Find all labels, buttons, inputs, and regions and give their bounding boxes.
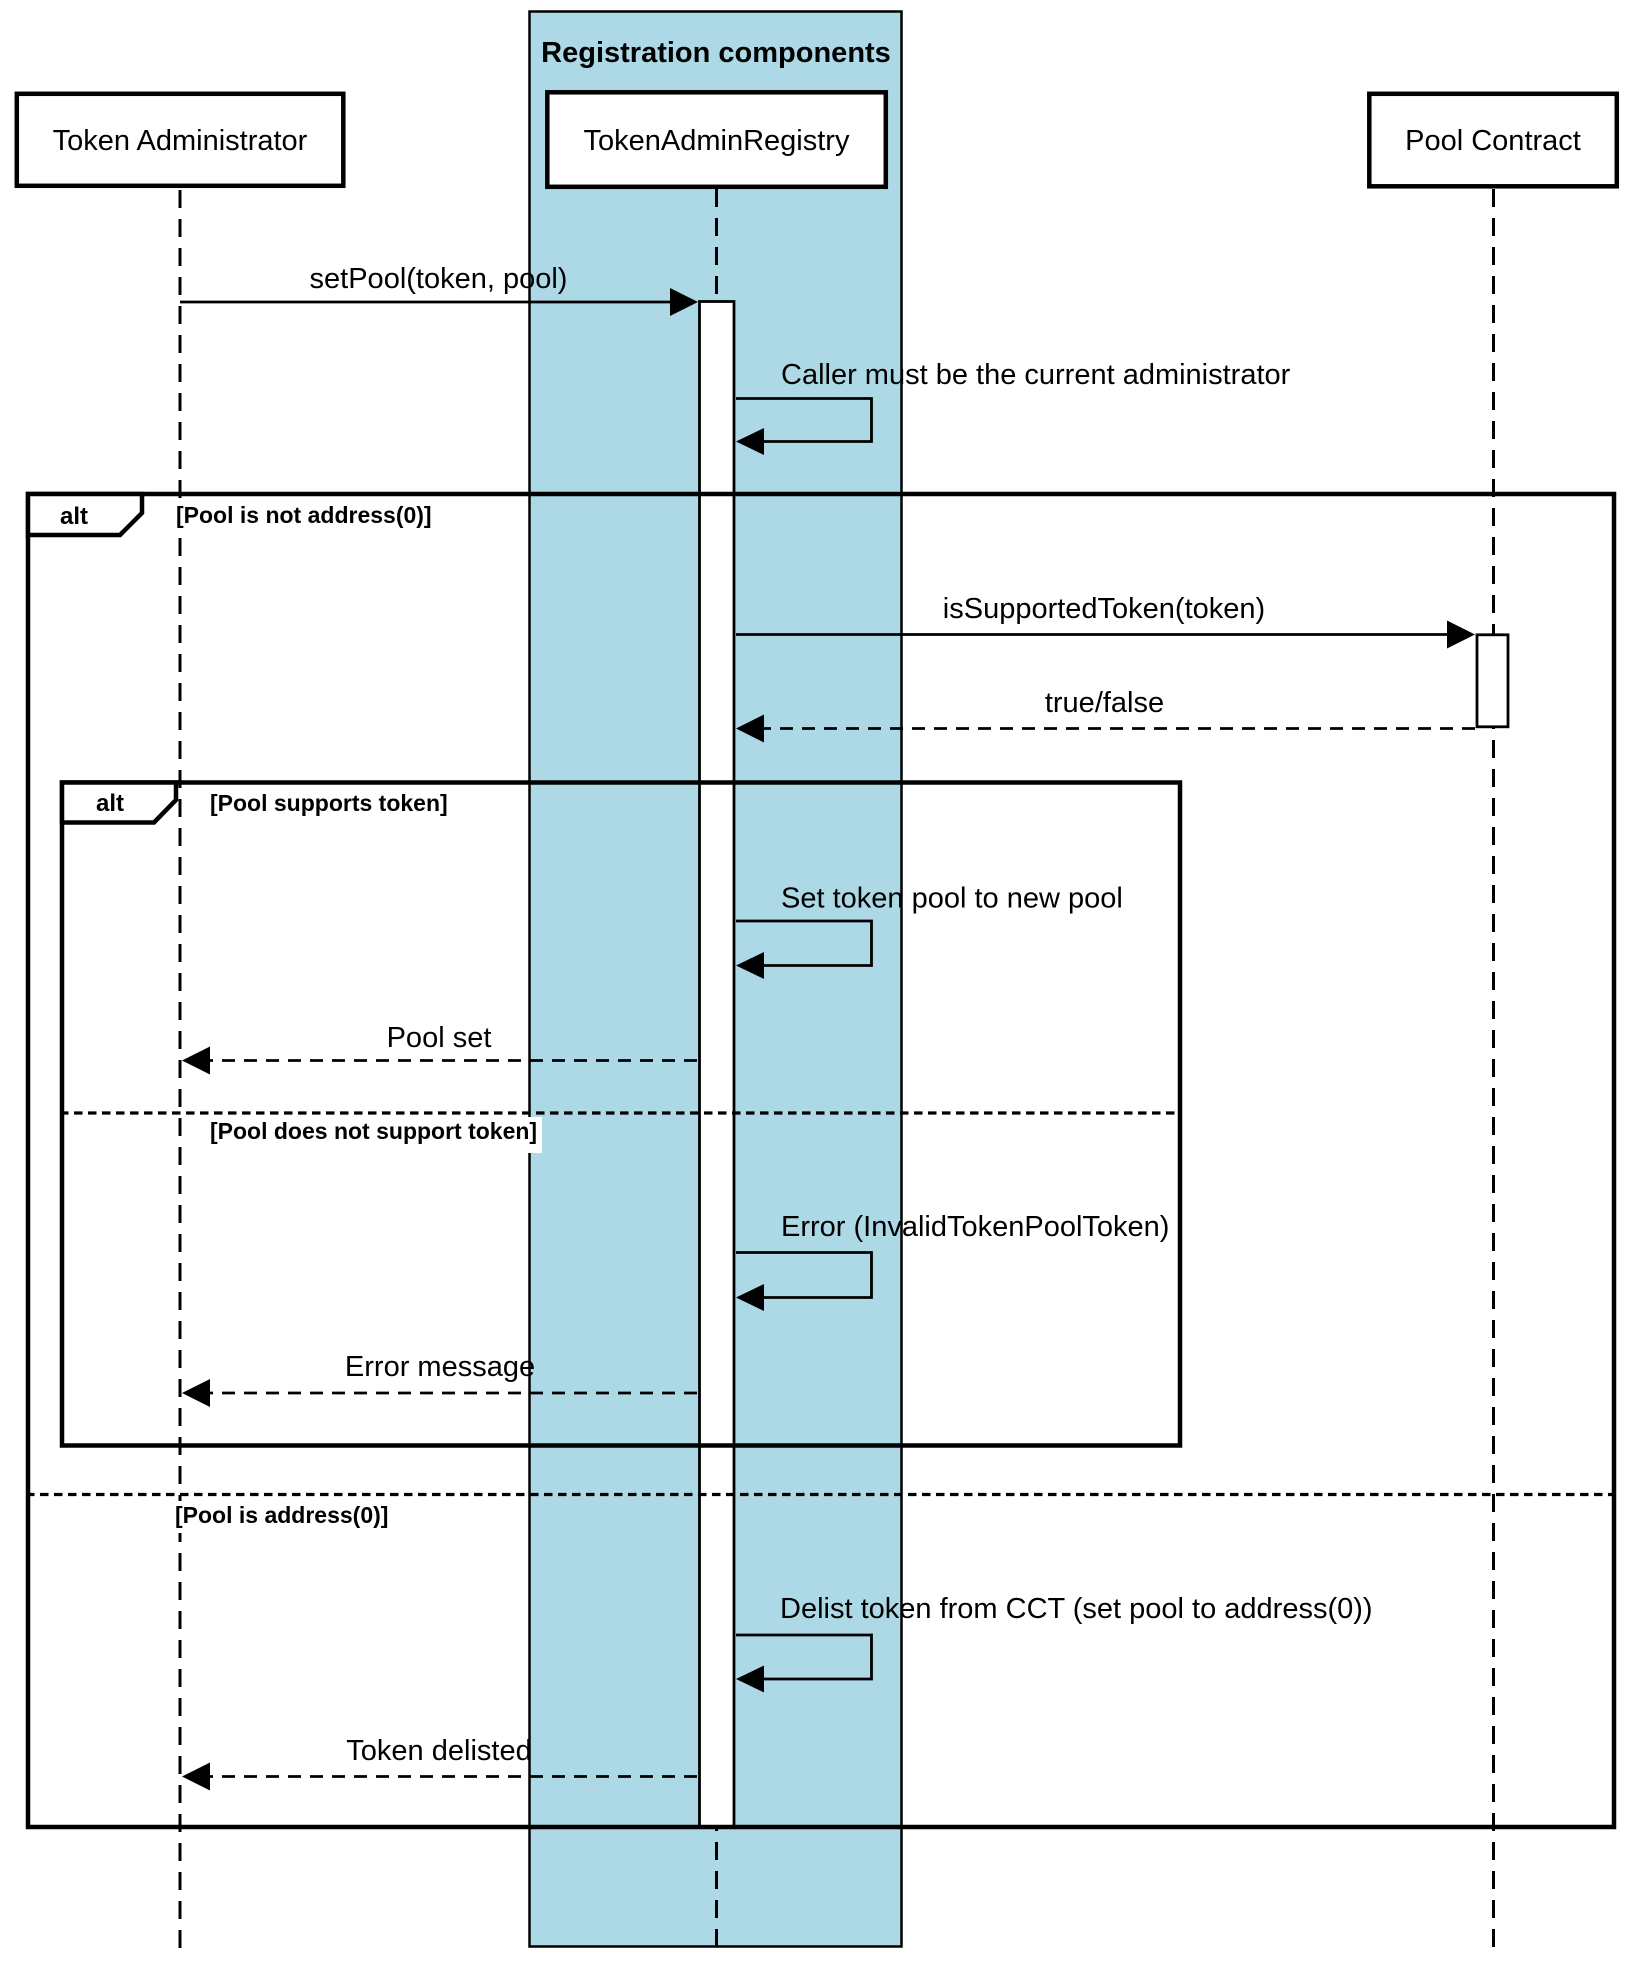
svg-text:alt: alt [96, 790, 124, 817]
svg-text:true/false: true/false [1045, 687, 1164, 719]
svg-text:Registration components: Registration components [541, 37, 891, 69]
svg-text:Token Administrator: Token Administrator [53, 125, 308, 157]
svg-text:TokenAdminRegistry: TokenAdminRegistry [584, 125, 850, 157]
svg-text:Pool Contract: Pool Contract [1405, 125, 1581, 157]
svg-text:isSupportedToken(token): isSupportedToken(token) [943, 593, 1265, 625]
svg-text:Caller must be the current adm: Caller must be the current administrator [781, 359, 1291, 391]
svg-text:alt: alt [60, 503, 88, 530]
svg-text:Error (InvalidTokenPoolToken): Error (InvalidTokenPoolToken) [781, 1211, 1169, 1243]
svg-text:[Pool is address(0)]: [Pool is address(0)] [175, 1502, 388, 1528]
svg-text:setPool(token, pool): setPool(token, pool) [310, 263, 568, 295]
svg-text:Token delisted: Token delisted [346, 1735, 531, 1767]
svg-text:Error message: Error message [345, 1351, 535, 1383]
svg-text:[Pool supports token]: [Pool supports token] [210, 790, 448, 816]
svg-text:[Pool is not address(0)]: [Pool is not address(0)] [176, 502, 432, 528]
svg-text:Delist token from CCT (set poo: Delist token from CCT (set pool to addre… [780, 1593, 1373, 1625]
svg-text:Pool set: Pool set [387, 1022, 492, 1054]
svg-text:Set token pool to new pool: Set token pool to new pool [781, 883, 1123, 915]
svg-text:[Pool does not support token]: [Pool does not support token] [210, 1118, 537, 1144]
